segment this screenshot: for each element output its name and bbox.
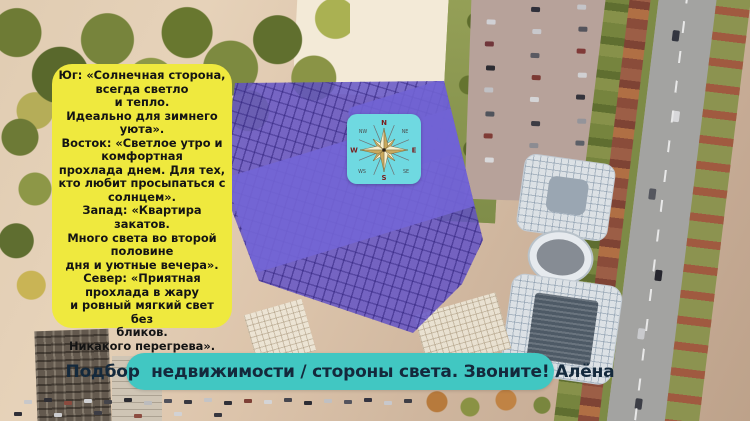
info-line: комфортная xyxy=(57,150,227,164)
compass-label-s: S xyxy=(381,174,386,182)
info-line: уюта». xyxy=(57,123,227,137)
info-line: Север: «Приятная xyxy=(57,272,227,286)
bottom-banner: Подбор недвижимости / стороны света. Зво… xyxy=(126,353,554,390)
compass-label-ws: WS xyxy=(358,169,366,175)
info-line: дня и уютные вечера». xyxy=(57,259,227,273)
info-line: солнцем». xyxy=(57,191,227,205)
parked-cars xyxy=(485,0,494,5)
info-line: прохлада днем. Для тех, xyxy=(57,164,227,178)
info-line: Восток: «Светлое утро и xyxy=(57,137,227,151)
info-line: и ровный мягкий свет без xyxy=(57,299,227,326)
compass-label-n: N xyxy=(381,119,387,127)
info-line: Много света во второй xyxy=(57,232,227,246)
info-line: бликов. xyxy=(57,326,227,340)
compass-label-se: SE xyxy=(403,169,409,175)
parked-cars xyxy=(4,398,12,402)
info-line: всегда светло xyxy=(57,83,227,97)
info-card: Юг: «Солнечная сторона, всегда светло и … xyxy=(52,64,232,328)
compass-label-ne: NE xyxy=(402,129,409,135)
compass-label-nw: NW xyxy=(359,129,368,135)
compass-rose: N S W E NW NE WS SE xyxy=(347,114,421,184)
info-line: и тепло. xyxy=(57,96,227,110)
info-line: половине xyxy=(57,245,227,259)
trees xyxy=(425,386,575,421)
real-estate-flyer: N S W E NW NE WS SE Юг: «Солнечная сторо… xyxy=(0,0,750,421)
building xyxy=(515,153,617,243)
compass-star: N S W E NW NE WS SE xyxy=(347,114,421,184)
info-line: Никакого перегрева». xyxy=(57,340,227,354)
compass-label-e: E xyxy=(412,147,417,155)
road-cars xyxy=(667,19,675,31)
compass-center xyxy=(382,148,386,152)
info-line: кто любит просыпаться с xyxy=(57,177,227,191)
info-line: Запад: «Квартира закатов. xyxy=(57,204,227,231)
courtyard xyxy=(545,175,590,216)
compass-label-w: W xyxy=(350,147,358,155)
info-line: Идеально для зимнего xyxy=(57,110,227,124)
banner-text: Подбор недвижимости / стороны света. Зво… xyxy=(66,362,615,382)
info-line: Юг: «Солнечная сторона, xyxy=(57,69,227,83)
info-line: прохлада в жару xyxy=(57,286,227,300)
